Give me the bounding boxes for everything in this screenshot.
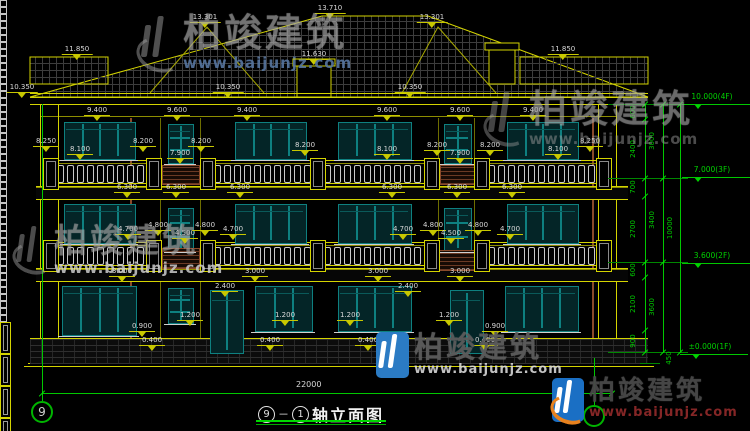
window-mullion xyxy=(274,288,276,328)
balcony-rail xyxy=(43,183,160,184)
ground-line xyxy=(24,366,654,367)
baluster xyxy=(394,247,401,265)
baluster xyxy=(224,165,231,183)
window-transom xyxy=(509,129,575,130)
pilaster-panel xyxy=(0,322,11,354)
baluster xyxy=(498,247,505,265)
dimension-label: 450 xyxy=(665,351,673,364)
eave-corbel xyxy=(0,217,7,224)
balcony-pedestal xyxy=(310,158,326,190)
balcony-pedestal xyxy=(200,240,216,272)
elevation-triangle-icon xyxy=(42,147,50,152)
window-sill xyxy=(334,160,414,161)
balcony-rail xyxy=(43,265,160,266)
window-transom xyxy=(237,211,303,212)
floor-slab-band xyxy=(36,186,628,200)
balcony-pedestal xyxy=(146,158,162,190)
baluster xyxy=(404,247,411,265)
baluster xyxy=(354,247,361,265)
title-underline-thin xyxy=(256,424,386,425)
right-wing-roof xyxy=(520,57,648,84)
level-flag: ±0.000(1F) xyxy=(689,343,732,351)
spot-elevation-value: 8.200 xyxy=(477,141,503,151)
eave-corbel xyxy=(0,315,7,322)
baluster xyxy=(97,247,104,265)
baluster xyxy=(568,165,575,183)
window-mullion xyxy=(374,288,376,328)
chimney-2-cap xyxy=(485,43,519,50)
baluster xyxy=(274,247,281,265)
left-wing-roof xyxy=(30,57,108,84)
window-mullion xyxy=(541,288,543,328)
drawing-title-text: 轴立面图 xyxy=(312,402,384,426)
window-transom xyxy=(237,129,303,130)
balcony-pedestal xyxy=(43,158,59,190)
eave-corbel xyxy=(0,147,7,154)
baluster xyxy=(518,247,525,265)
dimension-label: 600 xyxy=(629,105,637,118)
eave-corbel xyxy=(0,287,7,294)
corner-pilaster-edge xyxy=(40,104,41,363)
baluster xyxy=(404,165,411,183)
balcony-rail xyxy=(474,183,610,184)
level-flag: 10.000(4F) xyxy=(691,93,732,101)
window-transom xyxy=(170,299,190,301)
balcony-pedestal xyxy=(310,240,326,272)
eave-corbel xyxy=(0,203,7,210)
elevation-triangle-icon xyxy=(201,231,209,236)
level-extension-line xyxy=(608,178,688,179)
window-transom xyxy=(170,131,190,132)
eave-corbel xyxy=(0,266,7,273)
baluster xyxy=(344,165,351,183)
baluster xyxy=(87,247,94,265)
spot-elevation-marker: 8.250 xyxy=(33,137,59,152)
window-sill xyxy=(60,160,138,161)
watermark-url-text: www.baijunjz.com xyxy=(414,362,563,377)
baluster xyxy=(538,247,545,265)
window-transom xyxy=(509,211,575,212)
door-leaf-split xyxy=(466,293,468,350)
baluster xyxy=(67,247,74,265)
window-mullion xyxy=(356,288,358,328)
level-extension-line xyxy=(640,363,660,364)
eave-corbel xyxy=(0,238,7,245)
eave-corbel xyxy=(0,210,7,217)
baluster xyxy=(284,247,291,265)
eave-corbel xyxy=(0,133,7,140)
baluster xyxy=(508,165,515,183)
baluster xyxy=(538,165,545,183)
window-mullion xyxy=(523,288,525,328)
pilaster-panel xyxy=(0,386,11,418)
window-mullion xyxy=(292,288,294,328)
eave-fascia-line xyxy=(30,93,648,94)
window-transom xyxy=(507,293,575,294)
eave-corbel xyxy=(0,273,7,280)
bottom-dimension-line xyxy=(42,393,612,394)
baluster xyxy=(548,165,555,183)
window-sill xyxy=(440,164,474,165)
balcony-pedestal xyxy=(596,240,612,272)
spot-elevation-marker: 4.800 xyxy=(420,221,446,236)
window-transom xyxy=(170,236,190,238)
eave-corbel xyxy=(0,280,7,287)
baluster xyxy=(588,165,595,183)
eave-corbel xyxy=(0,175,7,182)
window-sill xyxy=(334,332,414,333)
corner-pilaster-edge xyxy=(58,104,59,363)
wall-top-line xyxy=(40,116,616,117)
dimension-label: 900 xyxy=(629,334,637,347)
eave-fascia-line xyxy=(30,97,648,98)
baluster xyxy=(568,247,575,265)
window-transom xyxy=(170,222,190,224)
window-mullion xyxy=(99,288,101,332)
eave-corbel xyxy=(0,245,7,252)
baluster xyxy=(264,247,271,265)
baluster xyxy=(244,165,251,183)
eave-corbel xyxy=(0,308,7,315)
dimension-label: 600 xyxy=(629,263,637,276)
baluster xyxy=(384,165,391,183)
baijun-logo-icon xyxy=(552,378,584,422)
spot-elevation-value: 4.800 xyxy=(192,221,218,231)
baluster xyxy=(588,247,595,265)
rain-pipe xyxy=(592,118,594,360)
window-mullion xyxy=(392,288,394,328)
balcony-rail xyxy=(43,163,160,164)
window-transom xyxy=(340,293,408,294)
window-transom xyxy=(446,236,468,238)
baluster xyxy=(334,165,341,183)
baluster xyxy=(384,247,391,265)
baluster xyxy=(548,247,555,265)
window-transom xyxy=(446,131,468,132)
eave-corbel xyxy=(0,196,7,203)
level-flag-line xyxy=(680,354,748,355)
watermark-url-text: www.baijunjz.com xyxy=(589,405,738,420)
baluster xyxy=(117,247,124,265)
baluster xyxy=(374,247,381,265)
balcony-rail xyxy=(474,163,610,164)
window-sill xyxy=(251,332,315,333)
elevation-triangle-icon xyxy=(139,147,147,152)
eave-corbel xyxy=(0,252,7,259)
dimension-label: 3400 xyxy=(648,211,656,229)
window-transom xyxy=(446,222,468,224)
window-sill xyxy=(58,336,139,337)
elevation-triangle-icon xyxy=(491,332,499,337)
elevation-triangle-icon xyxy=(433,151,441,156)
spot-elevation-value: 8.250 xyxy=(577,137,603,147)
baluster xyxy=(274,165,281,183)
spandrel-panel xyxy=(438,250,479,271)
eave-corbel xyxy=(0,294,7,301)
dimension-label: 2100 xyxy=(629,295,637,313)
baluster xyxy=(578,165,585,183)
baluster xyxy=(294,247,301,265)
baluster xyxy=(127,247,134,265)
drawing-title: 9 － 1 轴立面图 xyxy=(258,402,384,426)
balcony-pedestal xyxy=(596,158,612,190)
window-transom xyxy=(446,137,468,139)
window-mullion xyxy=(117,288,119,332)
baluster xyxy=(334,247,341,265)
baluster xyxy=(67,165,74,183)
baluster xyxy=(254,247,261,265)
baluster xyxy=(234,165,241,183)
floor-slab-band xyxy=(36,268,628,282)
baluster xyxy=(374,165,381,183)
baluster xyxy=(234,247,241,265)
elevation-triangle-icon xyxy=(138,332,146,337)
window-sill xyxy=(501,332,581,333)
elevation-triangle-icon xyxy=(474,231,482,236)
eave-corbel xyxy=(0,182,7,189)
balcony-pedestal xyxy=(146,240,162,272)
pilaster-panel xyxy=(0,354,11,386)
baluster xyxy=(558,247,565,265)
stone-base xyxy=(30,338,648,364)
baluster xyxy=(224,247,231,265)
axis-bubble xyxy=(583,405,605,427)
baluster xyxy=(354,165,361,183)
overall-width-dimension: 22000 xyxy=(296,380,321,389)
window-sill xyxy=(164,252,196,253)
baluster xyxy=(107,247,114,265)
balcony-pedestal xyxy=(43,240,59,272)
eave-corbel xyxy=(0,301,7,308)
door-leaf-split xyxy=(226,293,228,350)
axis-line xyxy=(42,104,43,401)
level-flag-line xyxy=(682,177,750,178)
window-sill xyxy=(440,252,474,253)
spot-elevation-marker: 8.250 xyxy=(577,137,603,152)
baluster xyxy=(264,165,271,183)
cad-elevation-drawing: 9 － 1 轴立面图 22000 96002400700270060021009… xyxy=(0,0,750,431)
pilaster-panel xyxy=(0,418,11,431)
baluster xyxy=(414,165,421,183)
spandrel-panel xyxy=(440,165,476,185)
window-sill xyxy=(503,244,581,245)
window-sill xyxy=(231,160,309,161)
window-transom xyxy=(64,293,133,294)
baluster xyxy=(294,165,301,183)
dimension-chain-line xyxy=(680,104,681,352)
baluster xyxy=(284,165,291,183)
window-transom xyxy=(257,293,309,294)
eave-corbel xyxy=(0,154,7,161)
eave-corbel xyxy=(0,168,7,175)
window-transom xyxy=(170,311,190,313)
baluster xyxy=(508,247,515,265)
baluster xyxy=(558,165,565,183)
eave-corbel xyxy=(0,224,7,231)
balcony-pedestal xyxy=(200,158,216,190)
level-extension-line xyxy=(608,262,688,263)
balcony-rail xyxy=(474,245,610,246)
roof xyxy=(0,0,750,120)
level-flag: 3.600(2F) xyxy=(694,252,730,260)
baluster xyxy=(137,247,144,265)
baluster xyxy=(77,165,84,183)
window-transom xyxy=(170,149,190,151)
bay-divider xyxy=(200,118,201,338)
baluster xyxy=(87,165,94,183)
baluster xyxy=(498,165,505,183)
level-extension-line xyxy=(608,352,688,353)
window-transom xyxy=(66,129,132,130)
window-transom xyxy=(170,215,190,216)
baluster xyxy=(127,165,134,183)
dimension-label: 2400 xyxy=(629,140,637,158)
elevation-triangle-icon xyxy=(486,151,494,156)
eave-corbel xyxy=(0,259,7,266)
baluster xyxy=(394,165,401,183)
axis-line xyxy=(594,358,595,405)
dimension-chain-line xyxy=(645,104,646,352)
corner-pilaster-edge xyxy=(598,104,599,363)
window-sill xyxy=(334,244,414,245)
dimension-label: 3600 xyxy=(648,298,656,316)
axis-bubble: 9 xyxy=(31,401,53,423)
door-transom xyxy=(212,300,240,301)
window-transom xyxy=(340,129,408,130)
baluster xyxy=(244,247,251,265)
eave-corbel xyxy=(0,231,7,238)
baluster xyxy=(528,247,535,265)
watermark: 柏竣建筑www.baijunjz.com xyxy=(552,378,738,422)
dimension-label: 2700 xyxy=(629,220,637,238)
window-transom xyxy=(446,149,468,151)
balcony-pedestal xyxy=(474,240,490,272)
dimension-label: 10000 xyxy=(666,217,674,239)
spot-elevation-value: 4.800 xyxy=(420,221,446,231)
elevation-triangle-icon xyxy=(429,231,437,236)
window-transom xyxy=(170,137,190,139)
window-transom xyxy=(170,295,190,296)
baluster xyxy=(97,165,104,183)
spandrel-panel xyxy=(162,165,200,185)
spot-elevation-marker: 4.800 xyxy=(192,221,218,236)
corner-pilaster-edge xyxy=(616,104,617,363)
baluster xyxy=(254,165,261,183)
window-sill xyxy=(164,324,196,325)
baluster xyxy=(518,165,525,183)
balcony-rail xyxy=(43,245,160,246)
eave-corbel xyxy=(0,189,7,196)
window-sill xyxy=(60,244,138,245)
baluster xyxy=(107,165,114,183)
baluster xyxy=(117,165,124,183)
level-flag: 7.000(3F) xyxy=(694,166,730,174)
window-mullion xyxy=(80,288,82,332)
chimney-cap xyxy=(293,59,335,66)
dimension-tick xyxy=(609,390,615,396)
bay-divider xyxy=(160,118,161,338)
dimension-label: 3000 xyxy=(648,132,656,150)
spot-elevation-marker: 8.200 xyxy=(477,141,503,156)
chimney-2 xyxy=(489,48,515,84)
dimension-label: 700 xyxy=(629,180,637,193)
eave-corbel xyxy=(0,126,7,133)
baluster xyxy=(528,165,535,183)
level-extension-line xyxy=(608,104,688,105)
level-flag-line xyxy=(682,263,750,264)
balcony-pedestal xyxy=(424,158,440,190)
balcony-pedestal xyxy=(474,158,490,190)
window-mullion xyxy=(559,288,561,328)
spot-elevation-value: 8.250 xyxy=(33,137,59,147)
baluster xyxy=(364,247,371,265)
window-transom xyxy=(66,211,132,212)
baluster xyxy=(137,165,144,183)
title-underline-thick xyxy=(256,420,386,422)
window-transom xyxy=(340,211,408,212)
window-sill xyxy=(503,160,581,161)
eave-corbel xyxy=(0,161,7,168)
door-transom xyxy=(452,300,480,301)
eave-corbel xyxy=(0,140,7,147)
window-sill xyxy=(164,164,196,165)
balcony-rail xyxy=(474,265,610,266)
eave-fascia-line xyxy=(30,104,648,105)
baluster xyxy=(344,247,351,265)
baluster xyxy=(364,165,371,183)
eave-corbel xyxy=(0,119,7,126)
baluster xyxy=(578,247,585,265)
dimension-chain-line xyxy=(663,104,664,352)
balcony-pedestal xyxy=(424,240,440,272)
window-transom xyxy=(446,215,468,216)
baluster xyxy=(414,247,421,265)
window-sill xyxy=(231,244,309,245)
baluster xyxy=(77,247,84,265)
level-flag-line xyxy=(682,104,750,105)
